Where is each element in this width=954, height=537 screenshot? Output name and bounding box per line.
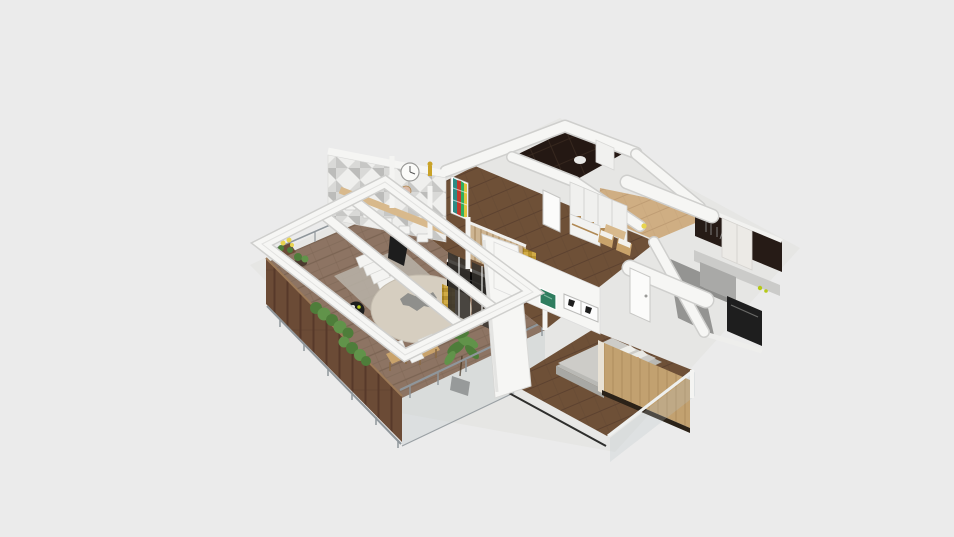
yellow-vase	[641, 223, 646, 228]
floorplan-render-viewport[interactable]	[0, 0, 954, 537]
gold-wall-sconce	[428, 162, 433, 177]
bedroom-door	[630, 268, 650, 322]
bathroom-door	[543, 190, 560, 232]
kitchen-appliance	[727, 296, 762, 346]
chevron-artwork	[451, 176, 468, 220]
floorplan-3d-scene	[0, 0, 954, 537]
counter-accent-item	[758, 286, 762, 290]
